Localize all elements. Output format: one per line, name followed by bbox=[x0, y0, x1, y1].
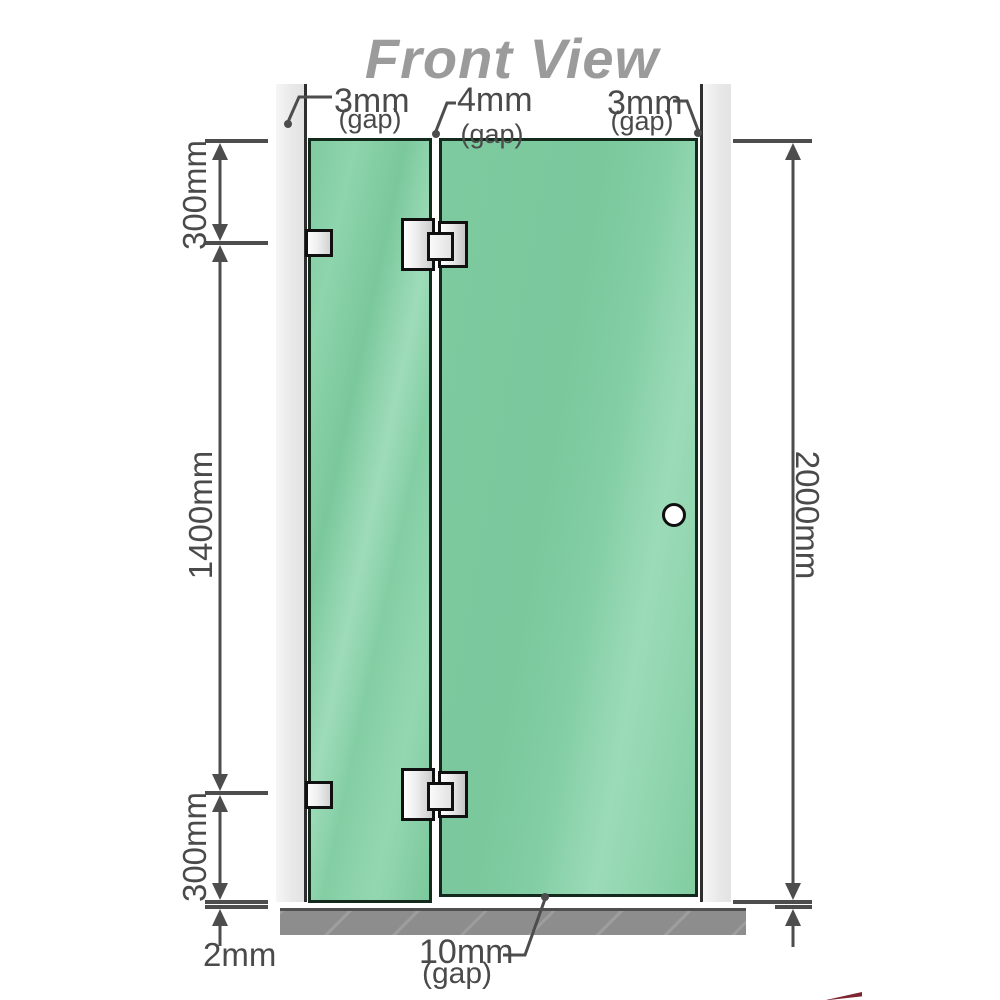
front-view-diagram: Front View bbox=[0, 0, 1000, 1000]
dim-label-bottom-300mm: 300mm bbox=[176, 762, 214, 932]
dim-label-top-300mm: 300mm bbox=[176, 110, 214, 280]
gap-label-middle-value: 4mm bbox=[457, 81, 533, 120]
dim-label-middle-1400mm: 1400mm bbox=[182, 430, 220, 600]
gap-label-middle-note: (gap) bbox=[452, 119, 532, 150]
dimension-lines bbox=[0, 0, 1000, 1000]
dim-label-total-2000mm: 2000mm bbox=[788, 430, 826, 600]
dim-label-floor-2mm: 2mm bbox=[203, 936, 276, 974]
gap-label-left-note: (gap) bbox=[330, 104, 410, 135]
gap-label-bottom-note: (gap) bbox=[412, 957, 502, 991]
gap-label-right-note: (gap) bbox=[602, 106, 682, 137]
